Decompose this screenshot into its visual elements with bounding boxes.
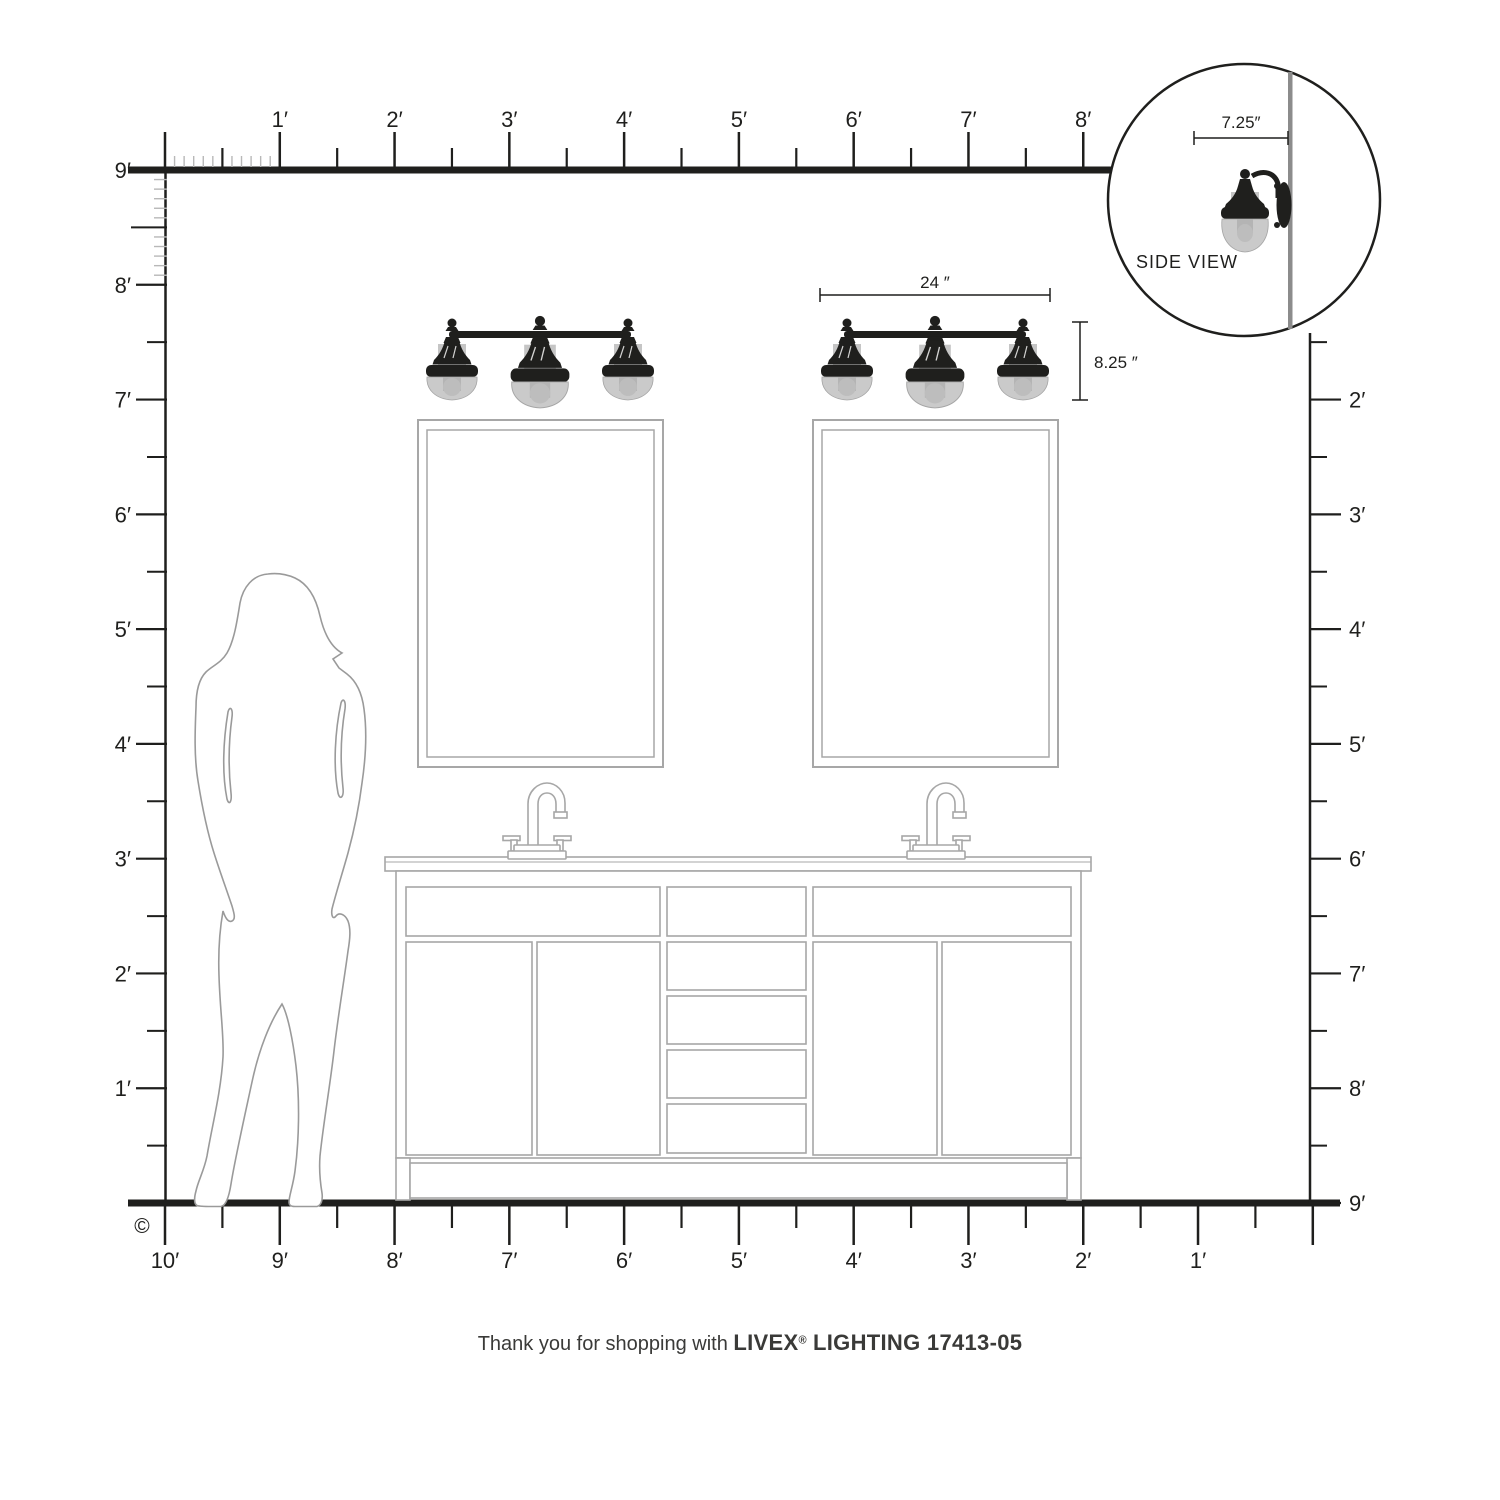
vanity-fixture-left bbox=[426, 316, 654, 408]
side-view-label: SIDE VIEW bbox=[1136, 252, 1238, 272]
ruler-label: 3′ bbox=[501, 107, 517, 132]
vanity-drawer-1 bbox=[667, 942, 806, 990]
ruler-label: 6′ bbox=[845, 107, 861, 132]
ruler-label: 8′ bbox=[1075, 107, 1091, 132]
ruler-label: 2′ bbox=[1075, 1248, 1091, 1273]
vanity-cabinet bbox=[385, 857, 1091, 1200]
woman-silhouette bbox=[195, 574, 366, 1207]
sconce-backplate bbox=[1277, 182, 1292, 228]
faucet-left bbox=[503, 783, 571, 859]
faucet-right bbox=[902, 783, 970, 859]
vanity-leg-right bbox=[1067, 1158, 1081, 1200]
sconce-finial-collar bbox=[1238, 179, 1252, 186]
vanity-door-1 bbox=[406, 942, 532, 1155]
right-ruler-ticks bbox=[1310, 342, 1341, 1203]
mirrors bbox=[418, 420, 1058, 767]
ruler-label: 4′ bbox=[845, 1248, 861, 1273]
ruler-label: 2′ bbox=[386, 107, 402, 132]
ruler-label: 7′ bbox=[115, 388, 131, 413]
ruler-label: 3′ bbox=[1349, 502, 1365, 527]
ruler-label: 5′ bbox=[731, 1248, 747, 1273]
vanity-kick-plate bbox=[410, 1163, 1067, 1198]
sconce-ring bbox=[1221, 207, 1269, 219]
depth-dim-label: 7.25″ bbox=[1221, 113, 1260, 132]
vanity-leg-left bbox=[396, 1158, 410, 1200]
width-dim-label: 24 ″ bbox=[920, 273, 950, 292]
vanity-top-panel-left bbox=[406, 887, 660, 936]
ruler-label: 2′ bbox=[1349, 388, 1365, 413]
ruler-label: 9′ bbox=[115, 158, 131, 183]
ruler-label: 7′ bbox=[1349, 961, 1365, 986]
vanity-drawer-2 bbox=[667, 996, 806, 1044]
vanity-door-3 bbox=[813, 942, 937, 1155]
mirror-left-inner bbox=[427, 430, 654, 757]
caption-brand: LIVEX bbox=[733, 1330, 798, 1355]
ruler-label: 4′ bbox=[115, 732, 131, 757]
vanity-fixture-right bbox=[821, 316, 1049, 408]
caption: Thank you for shopping with LIVEX® LIGHT… bbox=[0, 1330, 1500, 1356]
ruler-label: 10′ bbox=[151, 1248, 180, 1273]
vanity-countertop bbox=[385, 857, 1091, 871]
ruler-label: 5′ bbox=[115, 617, 131, 642]
side-view-inset: 7.25″ SIDE VIEW bbox=[1108, 64, 1380, 336]
ruler-label: 5′ bbox=[731, 107, 747, 132]
caption-registered-mark: ® bbox=[798, 1335, 806, 1347]
vanity-drawer-4 bbox=[667, 1104, 806, 1153]
sconce-globe-bulb bbox=[1237, 224, 1253, 242]
ruler-label: 4′ bbox=[616, 107, 632, 132]
sconce-backplate-knob-top bbox=[1274, 183, 1280, 189]
ruler-label: 8′ bbox=[1349, 1076, 1365, 1101]
sconce-backplate-knob-bottom bbox=[1274, 222, 1280, 228]
ruler-label: 1′ bbox=[1190, 1248, 1206, 1273]
ruler-label: 8′ bbox=[115, 273, 131, 298]
caption-prefix: Thank you for shopping with bbox=[478, 1333, 734, 1355]
vanity-drawer-3 bbox=[667, 1050, 806, 1098]
ruler-label: 7′ bbox=[960, 107, 976, 132]
ruler-label: 2′ bbox=[115, 961, 131, 986]
scale-diagram: 1′2′3′4′5′6′7′8′9′8′7′6′5′4′3′2′1′2′3′4′… bbox=[0, 0, 1500, 1500]
ruler-label: 1′ bbox=[272, 107, 288, 132]
caption-product: LIGHTING 17413-05 bbox=[807, 1330, 1023, 1355]
ruler-label: 6′ bbox=[616, 1248, 632, 1273]
sconce-finial-ball bbox=[1240, 169, 1250, 179]
vanity-door-2 bbox=[537, 942, 660, 1155]
top-ruler-ticks bbox=[165, 132, 1083, 167]
ruler-label: 3′ bbox=[115, 847, 131, 872]
ruler-label: 3′ bbox=[960, 1248, 976, 1273]
woman-outline bbox=[195, 574, 366, 1207]
mirror-right-inner bbox=[822, 430, 1049, 757]
ruler-label: 7′ bbox=[501, 1248, 517, 1273]
ruler-label: 6′ bbox=[115, 502, 131, 527]
ruler-label: 9′ bbox=[1349, 1191, 1365, 1216]
ruler-label: 8′ bbox=[386, 1248, 402, 1273]
height-dim-label: 8.25 ″ bbox=[1094, 353, 1138, 372]
vanity-top-panel-right bbox=[813, 887, 1071, 936]
ruler-label: 4′ bbox=[1349, 617, 1365, 642]
vanity-top-panel-center bbox=[667, 887, 806, 936]
ruler-label: 9′ bbox=[272, 1248, 288, 1273]
vanity-door-4 bbox=[942, 942, 1071, 1155]
ruler-label: 6′ bbox=[1349, 847, 1365, 872]
ruler-label: 5′ bbox=[1349, 732, 1365, 757]
copyright-symbol: © bbox=[134, 1215, 150, 1238]
ruler-label: 1′ bbox=[115, 1076, 131, 1101]
bottom-ruler-ticks bbox=[165, 1206, 1313, 1245]
left-ruler-ticks bbox=[131, 180, 167, 1146]
